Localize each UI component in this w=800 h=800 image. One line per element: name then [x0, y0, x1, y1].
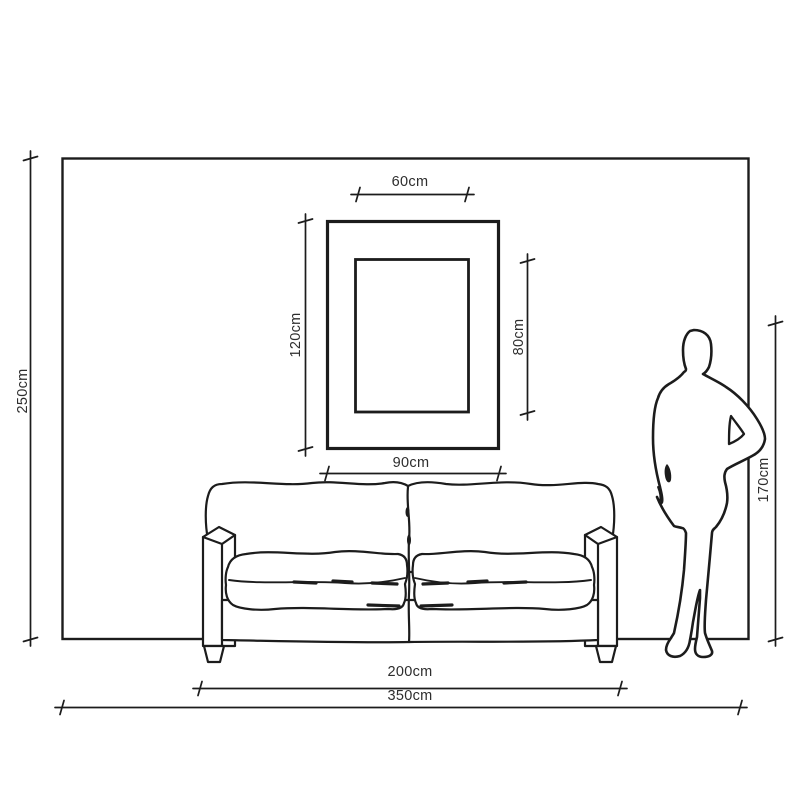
sofa-right-cushion: [413, 551, 595, 610]
dim-label-person-height: 170cm: [757, 457, 772, 502]
dim-label-frame-inner-width: 60cm: [392, 175, 429, 190]
dim-label-wall-width: 350cm: [387, 689, 432, 704]
sofa-left-cushion: [226, 551, 408, 610]
dim-label-frame-inner-height: 80cm: [512, 319, 527, 356]
dim-label-frame-outer-height: 120cm: [289, 312, 304, 357]
sofa-legs: [204, 646, 616, 662]
diagram-canvas: [0, 0, 800, 800]
picture-frame: [328, 222, 499, 449]
dim-label-frame-outer-width: 90cm: [393, 456, 430, 471]
dim-label-sofa-width: 200cm: [387, 665, 432, 680]
sofa-illustration: [203, 482, 617, 662]
dimension-diagram: 60cm 120cm 80cm 90cm 250cm 170cm 200cm 3…: [0, 0, 800, 800]
dim-label-wall-height: 250cm: [16, 368, 31, 413]
